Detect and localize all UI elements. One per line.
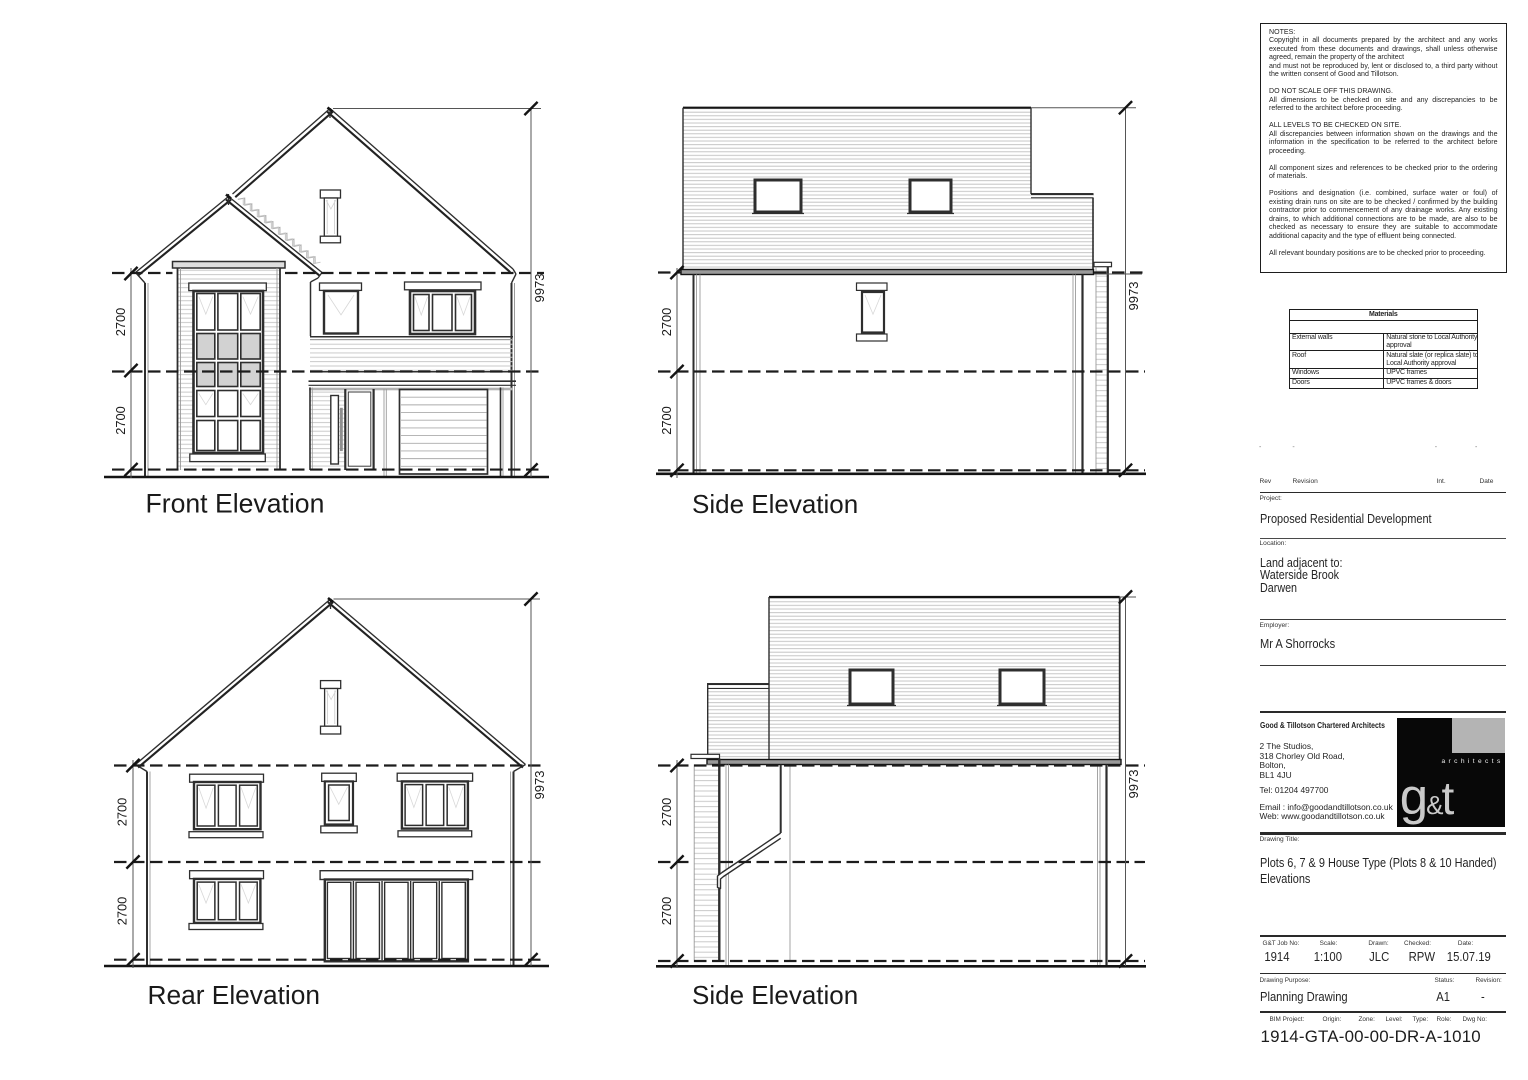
svg-text:9973: 9973 <box>1126 282 1141 311</box>
svg-text:2700: 2700 <box>659 308 674 336</box>
svg-text:9973: 9973 <box>532 274 547 303</box>
svg-text:Side Elevation: Side Elevation <box>692 980 858 1010</box>
svg-text:2700: 2700 <box>659 798 674 826</box>
svg-text:Rear Elevation: Rear Elevation <box>148 980 320 1010</box>
svg-text:9973: 9973 <box>1126 770 1141 799</box>
svg-text:2700: 2700 <box>115 798 130 826</box>
svg-text:2700: 2700 <box>659 897 674 925</box>
svg-text:2700: 2700 <box>113 406 128 434</box>
svg-text:9973: 9973 <box>532 771 547 800</box>
svg-text:2700: 2700 <box>115 897 130 925</box>
svg-text:Side Elevation: Side Elevation <box>692 489 858 519</box>
svg-text:2700: 2700 <box>113 308 128 336</box>
svg-text:Front Elevation: Front Elevation <box>146 489 325 519</box>
svg-text:2700: 2700 <box>659 406 674 434</box>
